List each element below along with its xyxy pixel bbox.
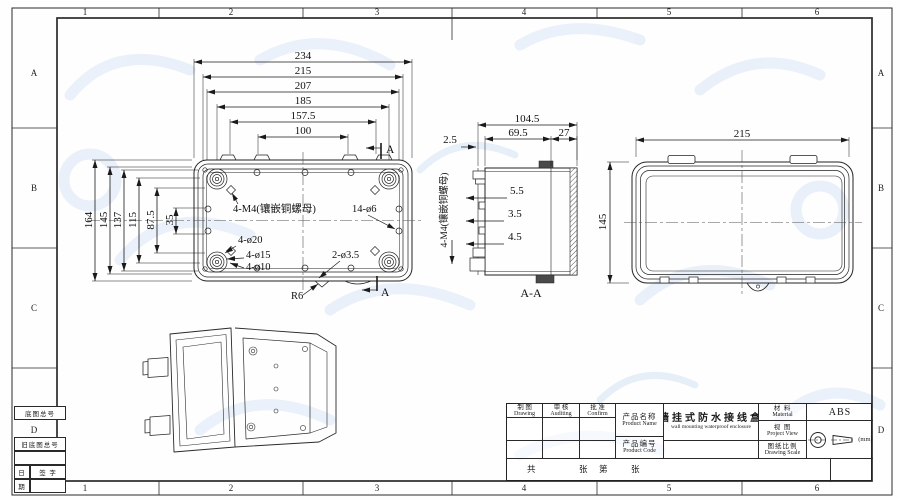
title-block: 制 图 Drawing 审 核 Auditing 批 准 Confirm 产品名… [506,403,872,481]
dim-3-5: 3.5 [508,208,522,220]
tb-scale-zh: 图纸比例 [768,443,798,450]
tb-confirm-en: Confirm [587,411,607,418]
grid-row-label-right-C: C [878,303,884,313]
grid-col-label-top-5: 5 [667,7,672,17]
annotation-d10: 4-ø10 [246,262,271,273]
tb-auditing-header: 审 核 Auditing [543,404,580,418]
tb-product-name-value: 墙挂式防水接线盒 wall mounting waterproof enclos… [664,404,759,441]
grid-col-label-bottom-6: 6 [815,483,820,493]
tb-product-name-label: 产品名称 Product Name [616,404,664,437]
margin-base-number-label: 底图总号 [25,408,55,418]
dim-207: 207 [295,80,312,92]
margin-empty-box [14,451,66,465]
grid-col-label-bottom-1: 1 [83,483,88,493]
margin-date-top-box: 日 [14,465,30,479]
tb-product-name-value-zh: 墙挂式防水接线盒 [664,413,759,424]
grid-col-label-top-6: 6 [815,7,820,17]
tb-sheet-total-unit: 张 [579,465,588,474]
annotation-14-holes: 14-ø6 [352,204,377,215]
dim-69-5: 69.5 [508,127,528,139]
dim-115: 115 [127,211,139,228]
annotation-d20: 4-ø20 [238,235,263,246]
tb-auditing-date-cell [543,441,580,459]
tb-material-value-text: ABS [829,407,851,418]
drawing-sheet: 234 215 207 185 157.5 100 164 145 137 11… [0,0,900,500]
tb-view-label: 视 图 Project View [759,421,807,441]
first-angle-projection-icon [807,429,857,451]
margin-base-number-box: 底图总号 [14,406,66,420]
annotations-back: 4-M4(镶嵌铜螺母) 14-ø6 4-ø20 4-ø15 4-ø10 2-ø3… [225,143,395,302]
grid-col-label-bottom-3: 3 [375,483,380,493]
dim-2-5: 2.5 [443,134,457,146]
tb-drawing-en: Drawing [514,411,535,418]
tb-sheet-number-label: 第 [599,465,608,474]
margin-old-base-number-label: 旧底图总号 [21,439,59,449]
grid-row-label-left-B: B [31,183,37,193]
grid-row-label-left-C: C [31,303,37,313]
annotation-r6: R6 [291,291,303,302]
tb-product-name-en: Product Name [622,421,657,428]
annotation-insert-nut-section: 4-M4(镶嵌铜螺母) [438,173,450,248]
tb-material-en: Material [772,412,792,419]
section-label: A-A [520,286,542,300]
tb-auditing-zh: 审 核 [554,404,569,411]
tb-material-zh: 材 料 [774,405,792,412]
dim-lid-215: 215 [734,128,751,140]
dim-185: 185 [295,95,312,107]
dim-145: 145 [98,211,110,228]
grid-row-label-right-B: B [878,183,884,193]
grid-col-label-top-1: 1 [83,7,88,17]
grid-col-label-top-3: 3 [375,7,380,17]
grid-row-label-left-D: D [31,425,38,435]
dim-137: 137 [112,211,124,228]
tb-confirm-zh: 批 准 [590,404,605,411]
dim-35: 35 [164,214,176,226]
tb-drawing-signature-cell [507,418,543,441]
tb-confirm-header: 批 准 Confirm [580,404,616,418]
tb-scale-en: Drawing Scale [765,450,801,457]
dim-164: 164 [83,211,95,228]
tb-scale-label: 图纸比例 Drawing Scale [759,441,807,459]
margin-date-bottom-label: 期 [18,481,26,491]
tb-auditing-en: Auditing [550,411,571,418]
annotation-d15: 4-ø15 [246,250,271,261]
tb-sheet-total-label: 共 [527,465,536,474]
tb-material-value: ABS [807,404,873,421]
grid-row-label-right-A: A [878,68,885,78]
tb-drawing-header: 制 图 Drawing [507,404,543,418]
grid-col-label-bottom-5: 5 [667,483,672,493]
tb-view-zh: 视 图 [774,424,792,431]
tb-sheet-count-row: 共 张 第 张 [507,459,831,482]
dim-87-5: 87.5 [145,210,157,230]
margin-old-base-number-box: 旧底图总号 [14,437,66,451]
margin-signature-box: 签 字 [30,465,66,479]
tb-product-code-en: Product Code [623,448,656,455]
grid-row-label-right-D: D [878,425,885,435]
view-section [470,161,577,283]
section-letter-bottom: A [381,287,390,299]
margin-signature-label: 签 字 [39,467,57,477]
tb-unit-label: (mm) [858,436,872,443]
section-letter-top: A [386,144,395,156]
dim-157-5: 157.5 [291,110,316,122]
tb-product-code-zh: 产品编号 [623,440,657,448]
annotation-d3-5: 2-ø3.5 [332,250,359,261]
tb-confirm-date-cell [580,441,616,459]
tb-product-name-zh: 产品名称 [623,413,657,421]
grid-col-label-top-2: 2 [229,7,234,17]
dim-4-5: 4.5 [508,231,522,243]
tb-sheet-number-unit: 张 [631,465,640,474]
tb-product-code-value [664,441,759,459]
tb-drawing-date-cell [507,441,543,459]
grid-col-label-top-4: 4 [522,7,527,17]
margin-date-top-label: 日 [18,467,26,477]
tb-material-label: 材 料 Material [759,404,807,421]
watermark-decoration [64,29,880,455]
tb-drawing-zh: 制 图 [517,404,532,411]
tb-auditing-signature-cell [543,418,580,441]
margin-date-bottom-box: 期 [14,479,30,493]
dim-labels-lid: 215 145 [597,128,751,230]
dim-labels-section: 104.5 69.5 27 2.5 5.5 3.5 4.5 4-M4(镶嵌铜螺母… [438,113,570,300]
view-isometric [143,328,336,452]
grid-row-label-left-A: A [31,68,38,78]
dim-215: 215 [295,65,312,77]
dim-lid-145: 145 [597,213,609,230]
dim-234: 234 [295,50,312,62]
tb-footer-right-cell [831,459,873,482]
tb-view-en: Project View [767,431,798,438]
dim-5-5: 5.5 [510,185,524,197]
dim-104-5: 104.5 [515,113,540,125]
grid-col-label-bottom-2: 2 [229,483,234,493]
tb-product-name-value-en: wall mounting waterproof enclosure [671,424,751,430]
annotation-insert-nut: 4-M4(镶嵌铜螺母) [233,202,316,215]
tb-projection-cell: (mm) [807,421,873,459]
dim-27: 27 [559,127,571,139]
tb-product-code-label: 产品编号 Product Code [616,437,664,459]
dim-100: 100 [295,125,312,137]
tb-confirm-signature-cell [580,418,616,441]
margin-signature-empty-box [30,479,66,493]
grid-col-label-bottom-4: 4 [522,483,527,493]
